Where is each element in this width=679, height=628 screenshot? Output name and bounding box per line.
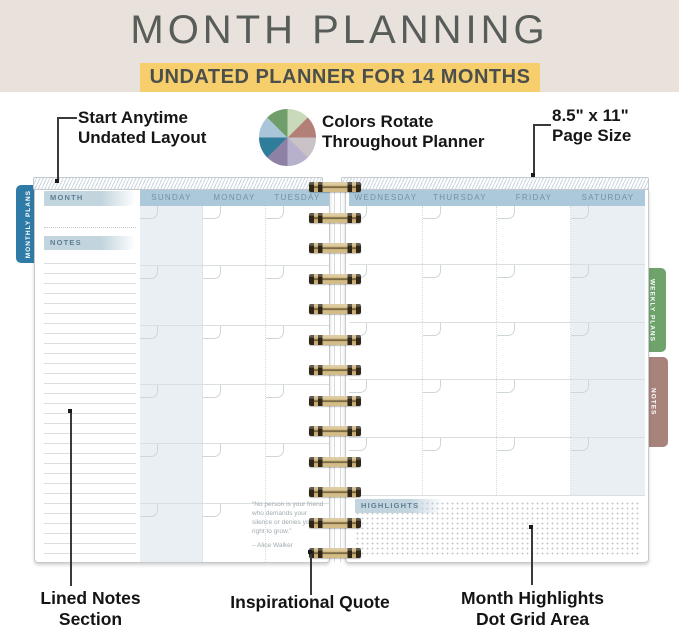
date-box <box>571 323 589 336</box>
callout-start-anytime-line2: Undated Layout <box>78 128 206 148</box>
date-box <box>266 385 284 398</box>
connector-line <box>531 528 533 585</box>
connector-line <box>310 553 312 595</box>
connector-line <box>57 117 77 119</box>
callout-start-anytime-line1: Start Anytime <box>78 108 206 128</box>
callout-month-highlights: Month Highlights Dot Grid Area <box>430 588 635 628</box>
calendar-cell <box>203 206 266 265</box>
date-box <box>203 504 221 517</box>
calendar-cell <box>203 384 266 443</box>
callout-lined-notes: Lined Notes Section <box>18 588 163 628</box>
spiral-coil <box>309 365 361 375</box>
date-box <box>266 266 284 279</box>
day-header: SUNDAY <box>140 190 203 206</box>
callout-colors-rotate-line2: Throughout Planner <box>322 132 484 152</box>
callout-colors-rotate: Colors Rotate Throughout Planner <box>322 112 484 152</box>
callout-page-size-line1: 8.5" x 11" <box>552 106 631 126</box>
calendar-cell <box>140 443 203 502</box>
calendar-cell <box>423 322 497 380</box>
weekly-plans-tab-label: WEEKLY PLANS <box>649 279 656 342</box>
lined-notes-area <box>44 254 136 555</box>
date-box <box>423 265 441 278</box>
day-header: SATURDAY <box>571 190 645 206</box>
spiral-coil <box>309 487 361 497</box>
callout-page-size-line2: Page Size <box>552 126 631 146</box>
calendar-cell <box>571 437 645 495</box>
date-box <box>423 323 441 336</box>
calendar-cell <box>423 264 497 322</box>
date-box <box>203 206 221 219</box>
calendar-cell <box>203 325 266 384</box>
spiral-coil <box>309 335 361 345</box>
connector-dot <box>308 550 312 554</box>
calendar-cell <box>203 443 266 502</box>
callout-inspirational-quote: Inspirational Quote <box>210 592 410 613</box>
connector-dot <box>68 409 72 413</box>
callout-inspirational-quote-line1: Inspirational Quote <box>210 592 410 613</box>
callout-start-anytime: Start Anytime Undated Layout <box>78 108 206 148</box>
date-box <box>497 323 515 336</box>
callout-lined-notes-line1: Lined Notes <box>18 588 163 609</box>
connector-line <box>533 124 551 126</box>
date-box <box>140 504 158 517</box>
callout-lined-notes-line2: Section <box>18 609 163 628</box>
date-box <box>266 444 284 457</box>
calendar-cell <box>497 437 571 495</box>
color-wheel-icon <box>259 109 316 166</box>
callout-colors-rotate-line1: Colors Rotate <box>322 112 484 132</box>
connector-dot <box>55 179 59 183</box>
date-box <box>266 206 284 219</box>
calendar-cell <box>571 264 645 322</box>
product-infographic: MONTH PLANNING UNDATED PLANNER FOR 14 MO… <box>0 0 679 628</box>
page-subtitle: UNDATED PLANNER FOR 14 MONTHS <box>150 66 531 89</box>
date-box <box>140 266 158 279</box>
calendar-cell <box>497 264 571 322</box>
calendar-cell <box>497 379 571 437</box>
date-box <box>497 380 515 393</box>
day-header: MONDAY <box>203 190 266 206</box>
page-title: MONTH PLANNING <box>0 8 679 53</box>
notes-mini-tab: NOTES <box>44 236 136 250</box>
calendar-cell <box>140 206 203 265</box>
date-box <box>203 444 221 457</box>
week-grid-right <box>349 206 645 495</box>
day-header: THURSDAY <box>423 190 497 206</box>
spiral-coil <box>309 304 361 314</box>
dotted-separator <box>44 227 136 228</box>
date-box <box>423 380 441 393</box>
spiral-coil <box>309 396 361 406</box>
date-box <box>423 438 441 451</box>
callout-month-highlights-line2: Dot Grid Area <box>430 609 635 628</box>
calendar-cell <box>423 437 497 495</box>
connector-line <box>70 412 72 586</box>
spiral-coil <box>309 243 361 253</box>
spiral-coil <box>309 457 361 467</box>
date-box <box>140 385 158 398</box>
callout-page-size: 8.5" x 11" Page Size <box>552 106 631 146</box>
date-box <box>571 438 589 451</box>
date-box <box>497 206 515 219</box>
date-box <box>266 326 284 339</box>
date-box <box>423 206 441 219</box>
calendar-cell <box>203 265 266 324</box>
highlights-mini-tab: HIGHLIGHTS <box>355 499 443 513</box>
day-header-band: SUNDAYMONDAYTUESDAY <box>140 190 329 206</box>
spiral-coil <box>309 548 361 558</box>
subtitle-band: UNDATED PLANNER FOR 14 MONTHS <box>140 63 540 92</box>
calendar-cell <box>497 206 571 264</box>
connector-line <box>57 117 59 179</box>
spiral-coil <box>309 274 361 284</box>
spiral-coil <box>309 426 361 436</box>
date-box <box>203 326 221 339</box>
calendar-cell <box>140 325 203 384</box>
date-box <box>140 444 158 457</box>
calendar-cell <box>571 322 645 380</box>
calendar-cell <box>497 322 571 380</box>
date-box <box>203 385 221 398</box>
month-mini-tab: MONTH <box>44 191 136 206</box>
spiral-binding <box>309 182 361 562</box>
calendar-cell <box>571 206 645 264</box>
connector-dot <box>531 173 535 177</box>
callout-month-highlights-line1: Month Highlights <box>430 588 635 609</box>
calendar-cell <box>140 384 203 443</box>
date-box <box>203 266 221 279</box>
calendar-cell <box>140 265 203 324</box>
connector-line <box>533 124 535 174</box>
connector-dot <box>529 525 533 529</box>
day-header-band: WEDNESDAYTHURSDAYFRIDAYSATURDAY <box>349 190 645 206</box>
calendar-cell <box>571 379 645 437</box>
monthly-plans-tab-label: MONTHLY PLANS <box>25 190 32 258</box>
date-box <box>140 206 158 219</box>
calendar-cell <box>423 379 497 437</box>
day-header: FRIDAY <box>497 190 571 206</box>
date-box <box>571 206 589 219</box>
calendar-cell <box>423 206 497 264</box>
date-box <box>497 265 515 278</box>
date-box <box>140 326 158 339</box>
date-box <box>571 380 589 393</box>
calendar-right: WEDNESDAYTHURSDAYFRIDAYSATURDAY HIGHLIGH… <box>349 190 645 562</box>
date-box <box>497 438 515 451</box>
highlights-section: HIGHLIGHTS <box>349 495 645 562</box>
notes-side-tab-label: NOTES <box>650 388 657 415</box>
spiral-coil <box>309 182 361 192</box>
spiral-coil <box>309 518 361 528</box>
calendar-cell <box>140 503 203 562</box>
date-box <box>571 265 589 278</box>
spiral-coil <box>309 213 361 223</box>
